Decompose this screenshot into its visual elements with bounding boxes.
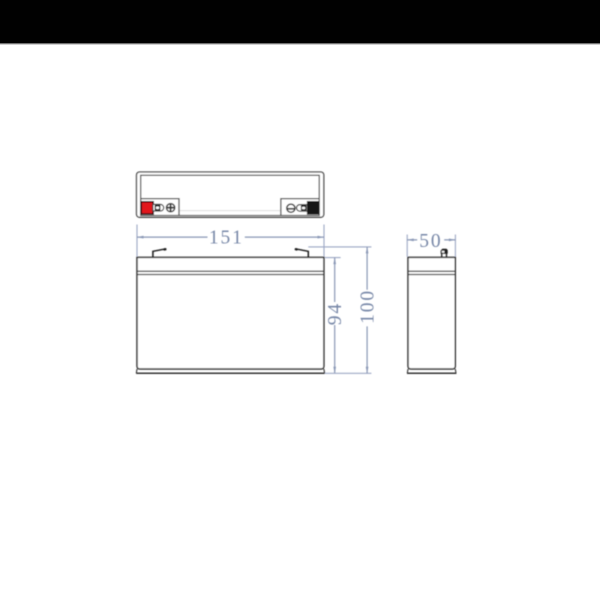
svg-text:151: 151 bbox=[209, 228, 244, 249]
svg-text:50: 50 bbox=[419, 231, 442, 252]
svg-text:94: 94 bbox=[325, 302, 346, 325]
svg-text:100: 100 bbox=[358, 289, 379, 324]
